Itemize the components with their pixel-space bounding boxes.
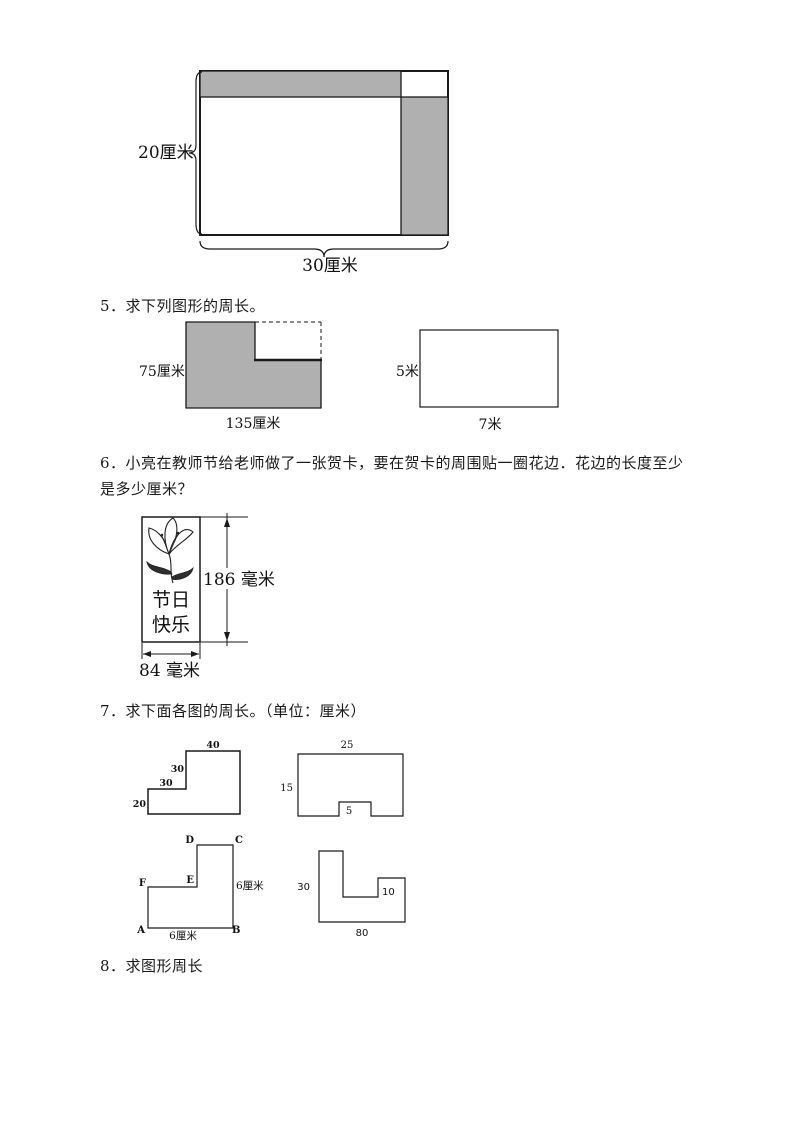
left-edge-label: 15 xyxy=(280,783,293,794)
height-arrowhead-up xyxy=(224,518,230,527)
question-6-text-line2: 是多少厘米？ xyxy=(100,479,193,499)
l-shape-shaded-figure: 75厘米 135厘米 xyxy=(130,315,330,435)
top-edge-label: 25 xyxy=(341,740,354,751)
height-dimension-label: 75厘米 xyxy=(139,364,185,380)
question-5-title: 5．求下列图形的周长。 xyxy=(100,296,265,316)
greeting-card-figure: 节日 快乐 186 毫米 84 毫米 xyxy=(135,510,300,685)
left-edge-label: 30 xyxy=(297,882,310,893)
block-polygon-figure: 30 10 80 xyxy=(288,843,420,942)
tread-edge-label: 30 xyxy=(159,778,173,789)
height-dimension-label: 20厘米 xyxy=(138,143,194,163)
height-arrowhead-down xyxy=(224,632,230,641)
width-dimension-label: 30厘米 xyxy=(302,256,358,276)
bottom-edge-label: 6厘米 xyxy=(169,929,197,942)
vertex-label-a: A xyxy=(136,925,145,936)
right-edge-label: 6厘米 xyxy=(236,879,264,892)
lettered-l-shape-figure: D C E F A B 6厘米 6厘米 xyxy=(128,833,270,950)
notched-rectangle-figure: 25 15 5 xyxy=(275,733,415,823)
width-arrowhead-right xyxy=(191,651,199,657)
width-dimension-label: 7米 xyxy=(479,417,502,433)
riser-edge-label: 30 xyxy=(171,764,185,775)
question-7-title: 7．求下面各图的周长。（单位：厘米） xyxy=(100,701,366,721)
width-brace xyxy=(200,241,448,257)
height-dimension-label: 5米 xyxy=(396,364,419,380)
width-arrowhead-left xyxy=(143,651,151,657)
worksheet-page: 20厘米 30厘米 5．求下列图形的周长。 75厘米 135厘米 5米 7米 6… xyxy=(0,0,794,1123)
top-edge-label: 40 xyxy=(206,740,220,751)
question-6-text-line1: 6．小亮在教师节给老师做了一张贺卡，要在贺卡的周围贴一圈花边．花边的长度至少 xyxy=(100,453,684,473)
width-dimension-label: 135厘米 xyxy=(226,416,281,432)
card-height-label: 186 毫米 xyxy=(203,570,275,590)
left-edge-label: 20 xyxy=(133,799,147,810)
card-greeting-line2: 快乐 xyxy=(152,614,190,636)
inner-edge-label: 10 xyxy=(382,887,395,898)
vertex-label-f: F xyxy=(139,878,146,889)
vertex-label-c: C xyxy=(235,835,243,846)
step-polygon-figure: 40 30 30 20 xyxy=(125,733,255,825)
vertex-label-d: D xyxy=(185,835,194,846)
vertex-label-e: E xyxy=(186,875,194,886)
card-width-label: 84 毫米 xyxy=(139,661,200,681)
card-greeting-line1: 节日 xyxy=(152,589,190,611)
notch-edge-label: 5 xyxy=(346,806,352,817)
l-shape-polygon xyxy=(186,322,321,408)
plain-rectangle-figure: 5米 7米 xyxy=(390,320,580,440)
shaded-top-strip xyxy=(200,71,401,97)
l-shape-polygon xyxy=(148,845,233,928)
question-8-title: 8．求图形周长 xyxy=(100,956,203,976)
shaded-right-strip xyxy=(401,97,448,235)
top-shaded-rectangle-figure: 20厘米 30厘米 xyxy=(130,60,470,280)
vertex-label-b: B xyxy=(232,925,240,936)
bottom-edge-label: 80 xyxy=(356,928,369,939)
rectangle-outline xyxy=(420,330,558,407)
